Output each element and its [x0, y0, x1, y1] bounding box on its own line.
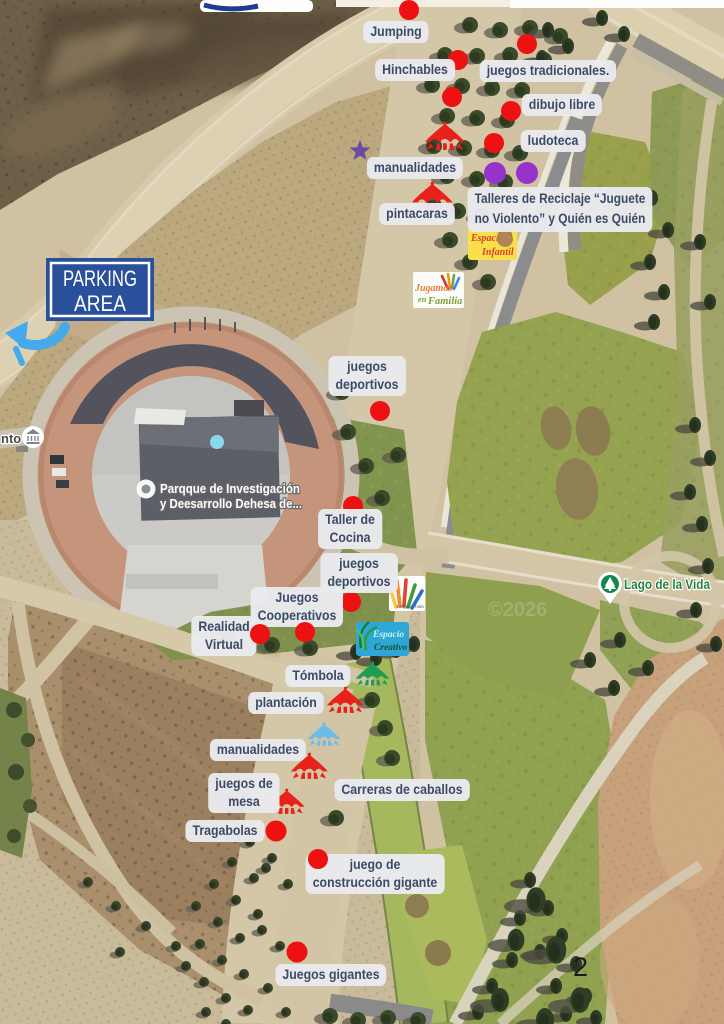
svg-text:nto: nto	[1, 431, 21, 446]
svg-text:Lago de la Vida: Lago de la Vida	[624, 576, 710, 592]
svg-text:AREA: AREA	[74, 291, 126, 316]
svg-text:Jugamos: Jugamos	[414, 283, 452, 294]
svg-text:Infantil: Infantil	[481, 247, 514, 258]
svg-text:Familia: Familia	[427, 296, 462, 307]
svg-text:y Deesarrollo Dehesa de...: y Deesarrollo Dehesa de...	[160, 496, 302, 511]
svg-text:PARKING: PARKING	[63, 266, 137, 291]
svg-text:Creativo: Creativo	[374, 643, 407, 653]
svg-text:Parqque de Investigación: Parqque de Investigación	[160, 481, 300, 496]
svg-text:2: 2	[573, 952, 588, 982]
svg-text:Juegos y más: Juegos y más	[396, 604, 425, 609]
svg-text:Espacio: Espacio	[372, 630, 404, 640]
svg-text:en: en	[418, 294, 427, 304]
